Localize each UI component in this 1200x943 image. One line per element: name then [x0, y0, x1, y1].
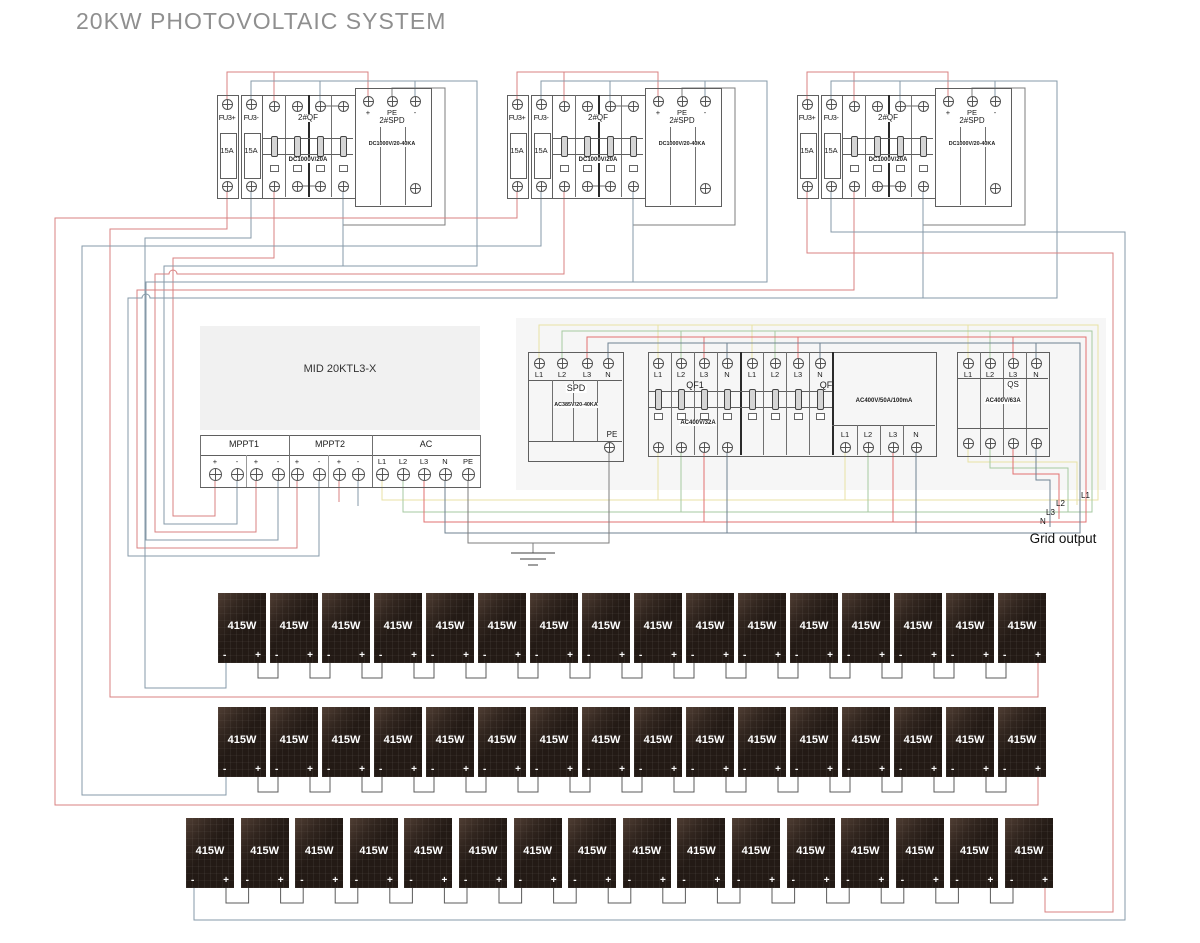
breaker-top-terminal: [628, 101, 639, 112]
fuse-rating: 15A: [244, 147, 257, 155]
ac-spd-terminal: [603, 358, 614, 369]
inverter-terminal: [209, 468, 222, 481]
panel-negative-terminal: -: [355, 876, 358, 886]
pv-panel: 415W-+: [270, 593, 318, 663]
qs-top-terminal: [1008, 358, 1019, 369]
fuse-label: FU3+: [799, 114, 816, 122]
dc-spd-divider: [985, 127, 986, 205]
breaker-bottom-terminal: [292, 181, 303, 192]
breaker-indicator: [850, 165, 859, 172]
pv-panel: 415W-+: [186, 818, 234, 888]
fuse-label: FU3-: [824, 114, 839, 122]
spd-top-terminal: [700, 96, 711, 107]
qf-top-terminal: [770, 358, 781, 369]
dc-spd-divider: [960, 127, 961, 205]
qs-top-terminal: [985, 358, 996, 369]
panel-power-label: 415W: [841, 845, 889, 857]
qs-line: [957, 428, 1048, 429]
pv-panel: 415W-+: [514, 818, 562, 888]
fuse-top-terminal: [246, 99, 257, 110]
panel-negative-terminal: -: [587, 765, 590, 775]
inverter-model: MID 20KTL3-X: [304, 364, 377, 375]
panel-negative-terminal: -: [847, 765, 850, 775]
pv-panel: 415W-+: [270, 707, 318, 777]
panel-power-label: 415W: [374, 620, 422, 632]
breaker-toggle: [630, 136, 637, 157]
panel-power-label: 415W: [322, 734, 370, 746]
inverter-terminal: [333, 468, 346, 481]
spd-terminal-label: -: [704, 109, 707, 117]
panel-negative-terminal: -: [1010, 876, 1013, 886]
breaker-indicator: [654, 413, 663, 420]
pv-panel: 415W-+: [998, 707, 1046, 777]
panel-power-label: 415W: [787, 845, 835, 857]
qf-bottom-terminal: [888, 442, 899, 453]
pv-panel: 415W-+: [634, 707, 682, 777]
panel-power-label: 415W: [295, 845, 343, 857]
pv-panel: 415W-+: [218, 707, 266, 777]
spd-terminal-label: +: [656, 109, 660, 117]
breaker-bottom-terminal: [918, 181, 929, 192]
spd-bottom-terminal: [700, 183, 711, 194]
fuse-cartridge: [534, 133, 551, 179]
breaker-toggle: [851, 136, 858, 157]
qf1-bottom-terminal: [676, 442, 687, 453]
qf-bottom-terminal-label: N: [913, 431, 918, 439]
panel-negative-terminal: -: [743, 651, 746, 661]
qf1-terminal-label: N: [724, 371, 729, 379]
fuse-bottom-terminal: [512, 181, 523, 192]
panel-positive-terminal: +: [619, 765, 625, 775]
fuse-bottom-terminal: [826, 181, 837, 192]
pv-panel: 415W-+: [634, 593, 682, 663]
qf1-bottom-terminal: [722, 442, 733, 453]
panel-negative-terminal: -: [409, 876, 412, 886]
breaker-indicator: [794, 413, 803, 420]
breaker-toggle: [340, 136, 347, 157]
panel-positive-terminal: +: [983, 651, 989, 661]
qs-top-terminal: [963, 358, 974, 369]
inverter-line: [480, 435, 481, 487]
panel-positive-terminal: +: [715, 876, 721, 886]
inverter-line: [289, 435, 290, 487]
qf1-bottom-terminal: [699, 442, 710, 453]
dc-breaker-rating: DC1000V/20A: [288, 157, 329, 163]
panel-power-label: 415W: [677, 845, 725, 857]
panel-positive-terminal: +: [723, 765, 729, 775]
breaker-top-terminal: [872, 101, 883, 112]
breaker-toggle: [678, 389, 685, 410]
fuse-label: FU3+: [219, 114, 236, 122]
pv-panel: 415W-+: [582, 593, 630, 663]
panel-positive-terminal: +: [411, 765, 417, 775]
dc-spd-divider: [405, 127, 406, 205]
pv-panel: 415W-+: [478, 707, 526, 777]
panel-negative-terminal: -: [223, 765, 226, 775]
qf1-top-terminal: [653, 358, 664, 369]
panel-negative-terminal: -: [1003, 651, 1006, 661]
dc-breaker-rating: DC1000V/20A: [578, 157, 619, 163]
qf1-terminal-label: L1: [654, 371, 662, 379]
panel-power-label: 415W: [530, 734, 578, 746]
qf1-top-terminal: [699, 358, 710, 369]
fuse-label: FU3+: [509, 114, 526, 122]
spd-bottom-terminal: [410, 183, 421, 194]
panel-power-label: 415W: [270, 734, 318, 746]
inverter-terminal-label: -: [277, 458, 280, 466]
pv-panel: 415W-+: [478, 593, 526, 663]
panel-power-label: 415W: [732, 845, 780, 857]
panel-positive-terminal: +: [463, 651, 469, 661]
panel-positive-terminal: +: [515, 651, 521, 661]
breaker-toggle: [817, 389, 824, 410]
breaker-top-terminal: [559, 101, 570, 112]
panel-power-label: 415W: [582, 734, 630, 746]
panel-power-label: 415W: [568, 845, 616, 857]
breaker-indicator: [560, 165, 569, 172]
pv-panel: 415W-+: [841, 818, 889, 888]
panel-positive-terminal: +: [671, 651, 677, 661]
qf-line: [857, 425, 858, 455]
qs-bottom-terminal: [1031, 438, 1042, 449]
inverter-line: [200, 455, 481, 456]
panel-power-label: 415W: [530, 620, 578, 632]
qs-label: QS: [1006, 381, 1020, 389]
breaker-toggle: [749, 389, 756, 410]
dc-breaker-label: 2#QF: [877, 114, 899, 122]
inverter-terminal-label: -: [318, 458, 321, 466]
pv-panel: 415W-+: [218, 593, 266, 663]
panel-negative-terminal: -: [792, 876, 795, 886]
inverter-section-mppt2: MPPT2: [315, 440, 345, 449]
inverter-terminal: [291, 468, 304, 481]
pv-panel: 415W-+: [894, 593, 942, 663]
pv-panel: 415W-+: [738, 707, 786, 777]
panel-negative-terminal: -: [691, 651, 694, 661]
grid-wire-label-l2: L2: [1056, 500, 1065, 508]
fuse-top-terminal: [512, 99, 523, 110]
panel-negative-terminal: -: [795, 651, 798, 661]
panel-power-label: 415W: [896, 845, 944, 857]
panel-negative-terminal: -: [464, 876, 467, 886]
panel-negative-terminal: -: [737, 876, 740, 886]
spd-top-terminal: [990, 96, 1001, 107]
pv-panel: 415W-+: [1005, 818, 1053, 888]
inverter-terminal-label: +: [295, 458, 299, 466]
spd-terminal-label: +: [946, 109, 950, 117]
panel-negative-terminal: -: [535, 765, 538, 775]
dc-spd-rating: DC1000V/20-40KA: [658, 142, 706, 147]
breaker-indicator: [606, 165, 615, 172]
qf-pole-divider: [763, 352, 764, 455]
pv-panel: 415W-+: [426, 707, 474, 777]
fuse-bottom-terminal: [802, 181, 813, 192]
qs-terminal-label: N: [1033, 371, 1038, 379]
breaker-indicator: [583, 165, 592, 172]
dc-breaker-divider: [598, 95, 600, 197]
panel-power-label: 415W: [946, 620, 994, 632]
panel-negative-terminal: -: [191, 876, 194, 886]
grid-wire-label-l3: L3: [1046, 509, 1055, 517]
panel-negative-terminal: -: [327, 651, 330, 661]
breaker-indicator: [919, 165, 928, 172]
pv-panel: 415W-+: [322, 593, 370, 663]
qf-toggle-line: [648, 407, 832, 408]
panel-power-label: 415W: [946, 734, 994, 746]
inverter-terminal-label: N: [442, 458, 447, 466]
panel-positive-terminal: +: [463, 765, 469, 775]
panel-power-label: 415W: [350, 845, 398, 857]
inverter-terminal-label: -: [357, 458, 360, 466]
breaker-toggle: [795, 389, 802, 410]
pv-panel: 415W-+: [842, 593, 890, 663]
panel-negative-terminal: -: [951, 765, 954, 775]
inverter-terminal-label: L3: [420, 458, 428, 466]
spd-top-terminal: [943, 96, 954, 107]
inverter-terminal-label: +: [254, 458, 258, 466]
qf-terminal-label: L1: [748, 371, 756, 379]
panel-negative-terminal: -: [223, 651, 226, 661]
panel-power-label: 415W: [894, 734, 942, 746]
inverter-section-ac: AC: [420, 440, 433, 449]
inverter-terminal: [418, 468, 431, 481]
panel-negative-terminal: -: [795, 765, 798, 775]
breaker-indicator: [816, 413, 825, 420]
panel-negative-terminal: -: [431, 765, 434, 775]
pv-panel: 415W-+: [686, 707, 734, 777]
fuse-top-terminal: [826, 99, 837, 110]
breaker-top-terminal: [918, 101, 929, 112]
breaker-bottom-terminal: [315, 181, 326, 192]
panel-power-label: 415W: [218, 734, 266, 746]
qf1-pole-divider: [717, 352, 718, 455]
pv-panel: 415W-+: [787, 818, 835, 888]
qf-bottom-terminal-label: L2: [864, 431, 872, 439]
pv-panel: 415W-+: [530, 707, 578, 777]
qf-line: [880, 425, 881, 455]
panel-power-label: 415W: [686, 620, 734, 632]
panel-power-label: 415W: [270, 620, 318, 632]
panel-positive-terminal: +: [775, 651, 781, 661]
panel-power-label: 415W: [478, 620, 526, 632]
panel-power-label: 415W: [738, 620, 786, 632]
qf1-pole-divider: [694, 352, 695, 455]
breaker-toggle: [271, 136, 278, 157]
pv-panel: 415W-+: [790, 707, 838, 777]
panel-positive-terminal: +: [332, 876, 338, 886]
qs-line: [1026, 352, 1027, 455]
panel-positive-terminal: +: [551, 876, 557, 886]
dc-spd-rating: DC1000V/20-40KA: [948, 142, 996, 147]
fuse-rating: 15A: [824, 147, 837, 155]
pv-panel: 415W-+: [842, 707, 890, 777]
panel-power-label: 415W: [738, 734, 786, 746]
panel-negative-terminal: -: [682, 876, 685, 886]
breaker-toggle: [607, 136, 614, 157]
panel-positive-terminal: +: [1042, 876, 1048, 886]
panel-power-label: 415W: [218, 620, 266, 632]
panel-power-label: 415W: [186, 845, 234, 857]
qf1-pole-divider: [671, 352, 672, 455]
spd-terminal-label: -: [994, 109, 997, 117]
qf-divider: [832, 352, 834, 455]
panel-power-label: 415W: [998, 620, 1046, 632]
qf-pole-divider: [809, 352, 810, 455]
pv-panel: 415W-+: [350, 818, 398, 888]
inverter-line: [200, 435, 481, 436]
panel-positive-terminal: +: [223, 876, 229, 886]
breaker-bottom-terminal: [582, 181, 593, 192]
ac-spd-terminal: [557, 358, 568, 369]
panel-power-label: 415W: [426, 734, 474, 746]
ac-spd-line: [597, 380, 598, 441]
panel-positive-terminal: +: [827, 765, 833, 775]
breaker-bottom-terminal: [605, 181, 616, 192]
fuse-label: FU3-: [534, 114, 549, 122]
breaker-indicator: [723, 413, 732, 420]
inverter-terminal: [352, 468, 365, 481]
panel-power-label: 415W: [1005, 845, 1053, 857]
qf-terminal-label: L2: [771, 371, 779, 379]
inverter-terminal-label: +: [213, 458, 217, 466]
panel-positive-terminal: +: [1035, 651, 1041, 661]
breaker-top-terminal: [895, 101, 906, 112]
inverter-line: [372, 435, 373, 487]
panel-positive-terminal: +: [307, 765, 313, 775]
panel-positive-terminal: +: [660, 876, 666, 886]
inverter-terminal-label: +: [337, 458, 341, 466]
panel-positive-terminal: +: [307, 651, 313, 661]
pv-panel: 415W-+: [896, 818, 944, 888]
breaker-indicator: [771, 413, 780, 420]
inverter-terminal-label: L1: [378, 458, 386, 466]
panel-negative-terminal: -: [431, 651, 434, 661]
panel-negative-terminal: -: [300, 876, 303, 886]
pv-panel: 415W-+: [732, 818, 780, 888]
qf-terminal-label: N: [817, 371, 822, 379]
qs-terminal-label: L3: [1009, 371, 1017, 379]
panel-power-label: 415W: [634, 620, 682, 632]
dc-breaker-divider: [888, 95, 890, 197]
dc-spd-divider: [695, 127, 696, 205]
pv-panel: 415W-+: [738, 593, 786, 663]
panel-positive-terminal: +: [775, 765, 781, 775]
panel-negative-terminal: -: [275, 765, 278, 775]
breaker-toggle: [897, 136, 904, 157]
panel-positive-terminal: +: [515, 765, 521, 775]
qf-rating: AC400V/50A/100mA: [856, 398, 913, 404]
breaker-toggle: [920, 136, 927, 157]
breaker-indicator: [629, 165, 638, 172]
panel-positive-terminal: +: [879, 765, 885, 775]
diagram-canvas: 20KW PHOTOVOLTAIC SYSTEM: [0, 0, 1200, 943]
panel-positive-terminal: +: [878, 876, 884, 886]
fuse-rating: 15A: [220, 147, 233, 155]
panel-negative-terminal: -: [847, 651, 850, 661]
qf1-bottom-terminal: [653, 442, 664, 453]
breaker-toggle: [655, 389, 662, 410]
breaker-toggle: [724, 389, 731, 410]
pv-panel: 415W-+: [459, 818, 507, 888]
panel-positive-terminal: +: [723, 651, 729, 661]
panel-positive-terminal: +: [359, 765, 365, 775]
qf-bottom-terminal: [863, 442, 874, 453]
spd-top-terminal: [387, 96, 398, 107]
panel-negative-terminal: -: [379, 651, 382, 661]
panel-negative-terminal: -: [951, 651, 954, 661]
breaker-toggle: [294, 136, 301, 157]
panel-positive-terminal: +: [619, 651, 625, 661]
dc-breaker-divider: [575, 95, 576, 197]
breaker-indicator: [270, 165, 279, 172]
qs-top-terminal: [1031, 358, 1042, 369]
qf1-label: QF1: [686, 381, 704, 390]
grid-output-label: Grid output: [1030, 531, 1097, 546]
breaker-bottom-terminal: [559, 181, 570, 192]
dc-breaker-divider: [865, 95, 866, 197]
breaker-bottom-terminal: [628, 181, 639, 192]
panel-negative-terminal: -: [587, 651, 590, 661]
ac-spd-pe-label: PE: [607, 431, 618, 439]
breaker-top-terminal: [849, 101, 860, 112]
ac-spd-rating: AC385V/20-40KA: [553, 403, 598, 408]
string3-positive: [807, 186, 1113, 912]
qf-toggle-line: [648, 391, 832, 392]
qf-divider: [740, 352, 742, 455]
ac-spd-terminal-label: L2: [558, 371, 566, 379]
grid-wire-label-n: N: [1040, 518, 1046, 526]
breaker-indicator: [748, 413, 757, 420]
breaker-bottom-terminal: [872, 181, 883, 192]
ac-spd-label: SPD: [566, 384, 587, 393]
qs-bottom-terminal: [963, 438, 974, 449]
qs-line: [980, 352, 981, 455]
panel-negative-terminal: -: [639, 651, 642, 661]
panel-negative-terminal: -: [327, 765, 330, 775]
pv-panel: 415W-+: [241, 818, 289, 888]
panel-negative-terminal: -: [899, 651, 902, 661]
pv-panel: 415W-+: [582, 707, 630, 777]
breaker-toggle: [772, 389, 779, 410]
pv-panel: 415W-+: [998, 593, 1046, 663]
pv-panel: 415W-+: [404, 818, 452, 888]
fuse-bottom-terminal: [536, 181, 547, 192]
panel-positive-terminal: +: [769, 876, 775, 886]
panel-negative-terminal: -: [955, 876, 958, 886]
fuse-rating: 15A: [800, 147, 813, 155]
breaker-bottom-terminal: [338, 181, 349, 192]
breaker-indicator: [316, 165, 325, 172]
pv-panel: 415W-+: [295, 818, 343, 888]
panel-positive-terminal: +: [827, 651, 833, 661]
dc-breaker-divider: [285, 95, 286, 197]
dc-breaker-label: 2#QF: [587, 114, 609, 122]
pv-panel: 415W-+: [322, 707, 370, 777]
panel-positive-terminal: +: [988, 876, 994, 886]
panel-negative-terminal: -: [899, 765, 902, 775]
panel-positive-terminal: +: [496, 876, 502, 886]
inverter-terminal: [313, 468, 326, 481]
panel-positive-terminal: +: [931, 651, 937, 661]
breaker-indicator: [896, 165, 905, 172]
panel-power-label: 415W: [842, 734, 890, 746]
dc-breaker-divider: [331, 95, 332, 197]
panel-power-label: 415W: [634, 734, 682, 746]
inverter-terminal: [439, 468, 452, 481]
fuse-label: FU3-: [244, 114, 259, 122]
pv-panel: 415W-+: [686, 593, 734, 663]
fuse-rating: 15A: [534, 147, 547, 155]
